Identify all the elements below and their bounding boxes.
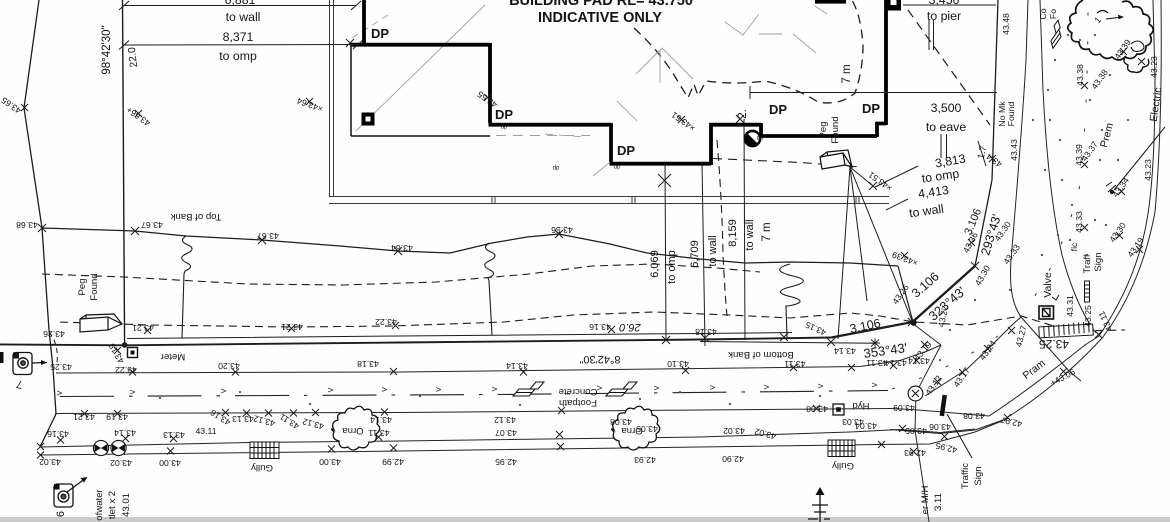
svg-text:43.14: 43.14 [834,346,856,356]
svg-text:DP: DP [371,26,389,41]
svg-text:43.01: 43.01 [121,493,132,517]
svg-text:43.26: 43.26 [43,329,65,339]
svg-text:Hyd: Hyd [852,400,869,411]
svg-text:43.25: 43.25 [1039,337,1069,351]
svg-text:43.18: 43.18 [357,359,379,369]
svg-text:dp: dp [552,164,559,170]
svg-text:Gully: Gully [832,460,854,471]
svg-text:7 m: 7 m [841,64,853,83]
svg-text:43.00: 43.00 [319,457,341,467]
svg-text:7 m: 7 m [761,222,773,241]
svg-text:43.07: 43.07 [495,428,517,438]
svg-text:43.43: 43.43 [1009,139,1019,161]
svg-text:Footpath: Footpath [559,397,597,408]
svg-text:3,500: 3,500 [931,101,962,115]
svg-text:Valve: Valve [1042,272,1054,298]
svg-text:Sign: Sign [1093,252,1104,271]
svg-text:6,881: 6,881 [225,0,256,7]
svg-text:to wall: to wall [226,10,261,24]
svg-text:43.11: 43.11 [195,426,216,436]
svg-text:to wall: to wall [707,235,719,266]
svg-text:43.23: 43.23 [1143,159,1153,181]
svg-text:8,159: 8,159 [727,219,739,247]
svg-text:6,709: 6,709 [689,240,701,268]
svg-text:43.02: 43.02 [39,457,61,467]
svg-text:43.08: 43.08 [806,404,828,414]
svg-text:Orna: Orna [342,425,364,436]
svg-text:Meter: Meter [160,351,185,362]
svg-text:43.19: 43.19 [106,412,128,422]
svg-text:Concrete: Concrete [559,386,598,397]
svg-text:43.11: 43.11 [368,428,389,438]
svg-text:43.64: 43.64 [391,243,413,253]
svg-text:Bottom of Bank: Bottom of Bank [728,349,794,360]
svg-text:43.14: 43.14 [114,428,136,438]
svg-text:43.09: 43.09 [893,403,915,413]
svg-text:Co: Co [1038,8,1048,19]
svg-text:43.14: 43.14 [370,415,392,425]
svg-text:43.21: 43.21 [73,412,95,422]
svg-text:43.10: 43.10 [667,359,689,369]
svg-text:fic: fic [1069,242,1079,251]
svg-text:43.16: 43.16 [589,322,611,332]
svg-text:6: 6 [55,511,67,517]
svg-text:43.16: 43.16 [47,429,69,439]
svg-text:43.18: 43.18 [695,327,717,337]
svg-text:43.14: 43.14 [885,358,907,368]
svg-text:Found: Found [89,273,100,300]
svg-text:43.05: 43.05 [905,426,927,436]
svg-text:to omp: to omp [666,250,678,284]
svg-text:ofwater: ofwater [94,488,105,520]
svg-text:43.67: 43.67 [141,220,163,230]
svg-text:Found: Found [830,116,841,143]
svg-text:2.: 2. [735,109,749,119]
svg-text:dp: dp [756,134,763,140]
svg-text:Peg: Peg [77,278,88,295]
svg-text:43.21: 43.21 [281,322,303,332]
svg-text:43.68: 43.68 [16,220,38,230]
svg-text:98°42'30": 98°42'30" [101,25,113,74]
svg-text:43.22: 43.22 [115,365,137,375]
svg-text:43.25: 43.25 [50,362,72,372]
svg-text:Fo: Fo [1048,9,1058,19]
svg-text:Gully: Gully [251,462,273,473]
svg-text:6,069: 6,069 [649,250,661,278]
svg-text:Peg: Peg [818,121,829,138]
svg-text:43.67: 43.67 [257,231,279,241]
svg-text:8,371: 8,371 [223,30,254,44]
svg-text:43.08: 43.08 [963,411,985,421]
svg-text:dp: dp [613,163,620,169]
svg-text:42.90: 42.90 [722,454,744,464]
svg-text:43.56: 43.56 [551,225,573,235]
svg-text:43.13: 43.13 [163,430,185,440]
svg-text:Orna: Orna [621,425,643,436]
svg-text:to wall: to wall [744,219,756,250]
svg-text:43.20: 43.20 [218,361,240,371]
svg-text:43.13: 43.13 [232,414,254,424]
svg-text:to pier: to pier [927,9,961,23]
svg-text:DP: DP [862,101,880,116]
svg-text:dp: dp [500,123,507,129]
svg-text:3.11: 3.11 [933,493,944,511]
svg-text:43.38: 43.38 [1075,64,1085,86]
svg-text:Top of Bank: Top of Bank [170,211,221,222]
svg-text:43.25: 43.25 [1083,305,1093,327]
svg-text:43.02: 43.02 [110,458,132,468]
svg-text:to eave: to eave [926,120,966,134]
svg-text:42.99: 42.99 [382,457,404,467]
svg-text:to omp: to omp [219,49,257,63]
svg-text:INDICATIVE ONLY: INDICATIVE ONLY [538,10,662,26]
svg-text:43.00: 43.00 [159,458,181,468]
svg-text:43.06: 43.06 [929,422,951,432]
svg-text:26.0: 26.0 [618,321,641,333]
svg-text:43.12: 43.12 [494,415,516,425]
svg-text:22.0: 22.0 [126,46,140,68]
svg-text:8°42'30": 8°42'30" [579,353,620,365]
svg-text:43.21: 43.21 [132,323,154,333]
svg-text:er M/H: er M/H [920,486,931,515]
svg-text:42.93: 42.93 [904,448,926,458]
svg-text:43.02: 43.02 [723,426,745,436]
svg-text:43.23: 43.23 [1149,56,1159,78]
svg-text:42.95: 42.95 [495,457,517,467]
svg-text:43.22: 43.22 [375,317,397,327]
svg-text:43.48: 43.48 [1001,13,1011,35]
svg-text:43.14: 43.14 [506,361,528,371]
svg-text:Traffic: Traffic [960,463,971,489]
svg-text:Traff: Traff [1082,254,1093,274]
svg-text:Sign: Sign [973,466,984,485]
svg-text:3,456: 3,456 [929,0,960,7]
svg-text:DP: DP [495,107,513,122]
svg-text:43.03: 43.03 [842,417,864,427]
svg-text:42.93: 42.93 [634,455,656,465]
svg-text:tlet x 2: tlet x 2 [107,491,118,519]
svg-text:Found: Found [1006,102,1016,127]
svg-text:43.14: 43.14 [908,356,930,366]
svg-text:43.33: 43.33 [1074,211,1084,233]
svg-text:BUILDING PAD RL= 43.750: BUILDING PAD RL= 43.750 [509,0,693,9]
svg-text:43.31: 43.31 [1065,295,1075,317]
svg-text:DP: DP [617,143,635,158]
svg-text:DP: DP [769,102,787,117]
